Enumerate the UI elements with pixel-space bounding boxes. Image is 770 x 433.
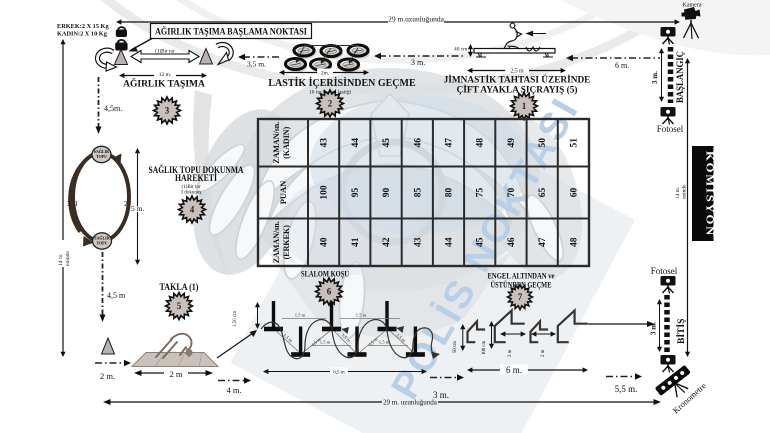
svg-text:5: 5 <box>177 301 182 311</box>
svg-text:eninde: eninde <box>682 184 688 199</box>
svg-text:KADIN:2 X 10 Kg: KADIN:2 X 10 Kg <box>57 31 108 38</box>
svg-text:Fotosel: Fotosel <box>651 266 678 276</box>
svg-text:3: 3 <box>67 200 71 208</box>
svg-text:HAREKETİ: HAREKETİ <box>175 173 217 183</box>
svg-text:3 m.: 3 m. <box>411 58 425 67</box>
svg-text:SLALOM KOŞU: SLALOM KOŞU <box>301 270 349 279</box>
svg-text:2,5 m: 2,5 m <box>510 69 524 75</box>
svg-text:100 cm: 100 cm <box>482 340 487 355</box>
svg-text:TOPU: TOPU <box>96 154 107 159</box>
svg-text:70: 70 <box>507 188 517 198</box>
svg-text:75: 75 <box>476 188 486 198</box>
svg-text:5,5 m.: 5,5 m. <box>615 384 638 394</box>
svg-text:Fotosel: Fotosel <box>657 124 684 134</box>
svg-text:65: 65 <box>538 188 548 198</box>
svg-text:5 m.: 5 m. <box>131 204 144 213</box>
svg-text:4,5m.: 4,5m. <box>104 104 122 113</box>
svg-text:6 m.: 6 m. <box>506 365 522 375</box>
svg-text:ÇİFT AYAKLA SIÇRAYIŞ (5): ÇİFT AYAKLA SIÇRAYIŞ (5) <box>457 84 578 96</box>
svg-text:45: 45 <box>382 138 392 148</box>
svg-text:2: 2 <box>124 200 128 208</box>
svg-text:60: 60 <box>569 188 579 198</box>
svg-text:29 m.uzunluğunda: 29 m.uzunluğunda <box>388 15 444 24</box>
svg-text:80: 80 <box>445 188 455 198</box>
svg-text:47: 47 <box>445 138 455 148</box>
svg-text:50 cm: 50 cm <box>453 341 458 353</box>
svg-text:43: 43 <box>413 237 423 247</box>
svg-text:BAŞLANGIÇ: BAŞLANGIÇ <box>675 51 685 103</box>
svg-text:6 m.: 6 m. <box>615 61 629 70</box>
svg-text:29 m. uzunluğunda: 29 m. uzunluğunda <box>383 399 438 407</box>
svg-text:14 m.: 14 m. <box>58 253 64 266</box>
svg-text:50: 50 <box>538 138 548 148</box>
svg-text:100: 100 <box>320 185 330 200</box>
svg-text:48: 48 <box>569 237 579 247</box>
svg-text:2: 2 <box>328 99 333 109</box>
svg-text:44: 44 <box>445 237 455 247</box>
svg-text:2 m: 2 m <box>541 349 546 357</box>
svg-text:3 dokunuş: 3 dokunuş <box>181 191 202 196</box>
svg-text:7: 7 <box>518 292 523 302</box>
svg-text:ERKEK:2 X 15 Kg: ERKEK:2 X 15 Kg <box>57 23 109 30</box>
svg-text:6,5 m: 6,5 m <box>333 371 345 376</box>
svg-text:42: 42 <box>382 237 392 247</box>
svg-text:ENGEL ALTINDAN ve: ENGEL ALTINDAN ve <box>488 272 555 281</box>
svg-text:3,5 m.: 3,5 m. <box>247 60 266 69</box>
svg-text:40 cm: 40 cm <box>454 47 468 53</box>
svg-text:14 m.: 14 m. <box>675 187 681 199</box>
svg-text:48: 48 <box>476 138 486 148</box>
svg-text:41: 41 <box>351 237 361 247</box>
svg-text:(1)Bir tur: (1)Bir tur <box>181 185 200 190</box>
svg-text:ZAMAN/sn.: ZAMAN/sn. <box>272 221 281 263</box>
svg-text:44: 44 <box>351 138 361 148</box>
svg-text:45: 45 <box>476 237 486 247</box>
svg-text:43: 43 <box>320 138 330 148</box>
svg-text:4: 4 <box>190 205 195 215</box>
svg-text:47: 47 <box>538 237 548 247</box>
svg-text:TAKLA (1): TAKLA (1) <box>160 282 199 292</box>
svg-text:3: 3 <box>165 106 170 116</box>
svg-text:(ERKEK): (ERKEK) <box>282 225 291 260</box>
svg-text:2 m.: 2 m. <box>100 371 115 381</box>
svg-text:40: 40 <box>320 237 330 247</box>
svg-text:eninde: eninde <box>65 251 71 266</box>
svg-text:2 m: 2 m <box>170 369 183 379</box>
svg-text:12 m.: 12 m. <box>159 72 172 78</box>
svg-text:ZAMAN/sn.: ZAMAN/sn. <box>272 122 281 164</box>
svg-text:PUAN: PUAN <box>278 180 288 204</box>
svg-text:1,50 cm: 1,50 cm <box>233 311 238 327</box>
svg-text:95: 95 <box>351 188 361 198</box>
svg-text:1: 1 <box>75 200 79 208</box>
svg-text:3 m.: 3 m. <box>651 71 659 84</box>
svg-text:46: 46 <box>413 138 423 148</box>
svg-text:LASTİK İÇERİSİNDEN GEÇME: LASTİK İÇERİSİNDEN GEÇME <box>268 77 416 89</box>
svg-text:46: 46 <box>507 237 517 247</box>
svg-text:4,5 m: 4,5 m <box>107 291 126 300</box>
svg-text:4 m.: 4 m. <box>226 385 241 395</box>
svg-text:1: 1 <box>522 101 527 111</box>
svg-text:2m.: 2m. <box>321 71 330 77</box>
svg-text:2 m: 2 m <box>508 349 513 357</box>
svg-text:TOPU: TOPU <box>96 241 107 246</box>
svg-text:90: 90 <box>382 188 392 198</box>
svg-text:BİTİŞ: BİTİŞ <box>675 319 687 344</box>
svg-text:(KADIN): (KADIN) <box>282 126 291 158</box>
svg-text:6: 6 <box>327 287 332 297</box>
svg-text:85: 85 <box>413 188 423 198</box>
svg-text:51: 51 <box>569 138 579 148</box>
svg-text:KOMİSYON: KOMİSYON <box>704 151 716 237</box>
svg-text:49: 49 <box>507 138 517 148</box>
